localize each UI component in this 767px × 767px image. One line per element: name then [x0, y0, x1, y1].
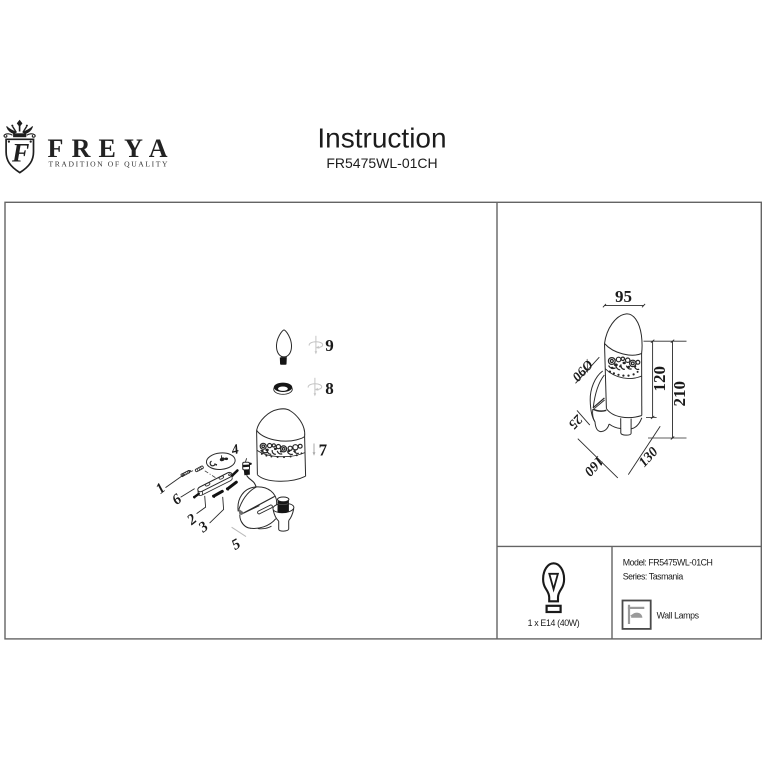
- svg-text:25: 25: [566, 411, 587, 432]
- svg-text:Ø90: Ø90: [569, 356, 597, 384]
- svg-text:95: 95: [615, 287, 632, 306]
- svg-text:9: 9: [325, 336, 334, 355]
- svg-text:5: 5: [229, 536, 244, 554]
- svg-text:1 x E14 (40W): 1 x E14 (40W): [528, 618, 580, 628]
- svg-text:160: 160: [581, 453, 606, 479]
- svg-text:FR5475WL-01CH: FR5475WL-01CH: [326, 155, 437, 171]
- svg-text:3: 3: [195, 518, 212, 536]
- svg-text:6: 6: [169, 491, 185, 509]
- svg-text:130: 130: [636, 445, 661, 471]
- svg-text:Instruction: Instruction: [317, 123, 446, 154]
- svg-text:120: 120: [650, 366, 669, 392]
- svg-text:Series: Tasmania: Series: Tasmania: [623, 572, 684, 582]
- svg-text:8: 8: [325, 379, 334, 398]
- svg-text:TRADITION OF QUALITY: TRADITION OF QUALITY: [49, 160, 170, 169]
- svg-text:Model: FR5475WL-01CH: Model: FR5475WL-01CH: [623, 558, 713, 568]
- svg-text:210: 210: [670, 381, 689, 407]
- svg-text:1: 1: [153, 480, 169, 497]
- svg-text:Wall Lamps: Wall Lamps: [657, 611, 700, 621]
- svg-text:F: F: [11, 139, 29, 168]
- svg-text:7: 7: [319, 440, 328, 459]
